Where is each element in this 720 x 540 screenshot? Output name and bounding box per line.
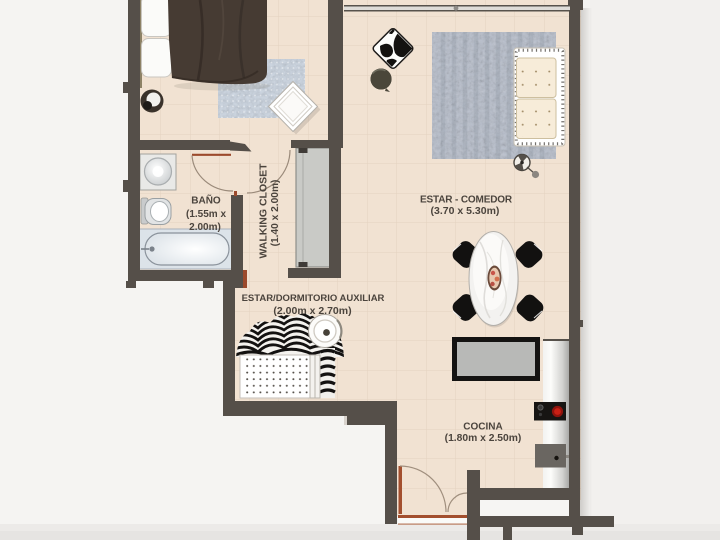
svg-text:ESTAR/DORMITORIO AUXILIAR: ESTAR/DORMITORIO AUXILIAR [242,293,385,304]
svg-text:COCINA: COCINA [463,422,502,433]
svg-text:(1.40 x 2.00m): (1.40 x 2.00m) [270,180,281,247]
svg-text:BAÑO: BAÑO [191,194,221,207]
svg-text:(1.55m x: (1.55m x [186,209,226,220]
svg-text:WALKING CLOSET: WALKING CLOSET [258,163,270,259]
svg-text:(2.00m x 2.70m): (2.00m x 2.70m) [273,305,351,317]
svg-text:(3.70 x 5.30m): (3.70 x 5.30m) [431,205,500,217]
svg-text:2.00m): 2.00m) [189,222,221,233]
svg-text:(1.80m x 2.50m): (1.80m x 2.50m) [445,433,522,444]
svg-text:ESTAR - COMEDOR: ESTAR - COMEDOR [420,195,513,206]
